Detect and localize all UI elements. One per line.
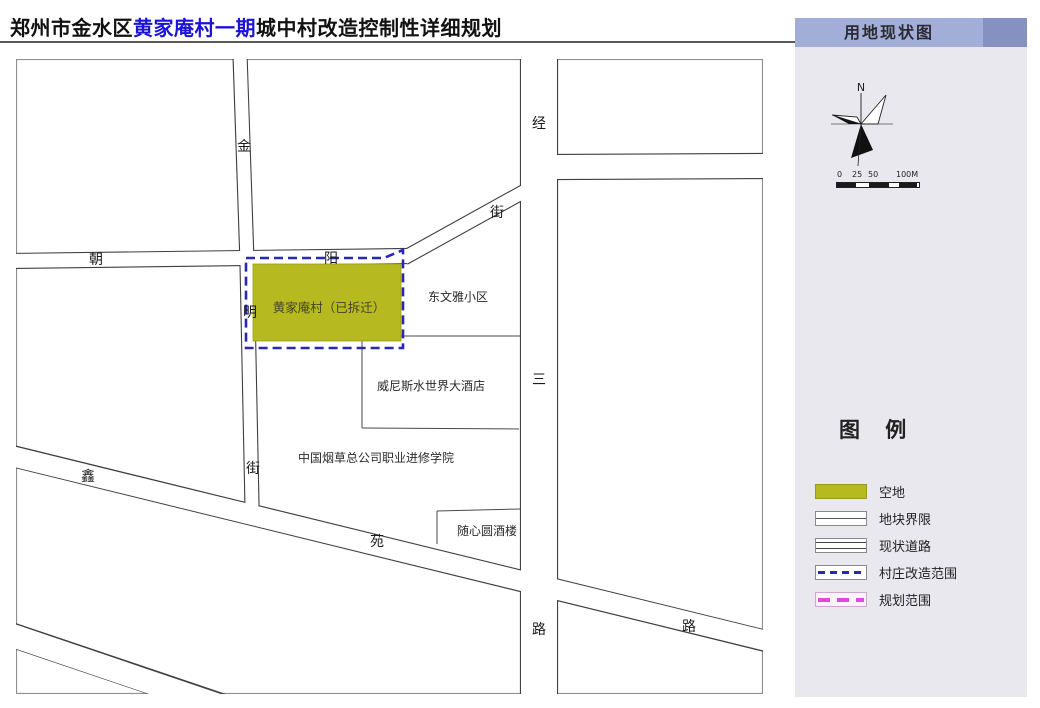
road-label-jin: 金 (237, 139, 251, 155)
scale-tick-0: 0 (837, 170, 842, 179)
existing-road-swatch (815, 538, 867, 553)
scale-tick-100m: 100M (896, 170, 918, 179)
legend-label: 现状道路 (879, 536, 931, 555)
legend-label: 规划范围 (879, 590, 931, 609)
plot-boundary-swatch (815, 511, 867, 526)
scale-tick-25: 25 (852, 170, 862, 179)
road-label-xin: 鑫 (81, 468, 95, 485)
compass-icon: N (828, 76, 898, 171)
road-label-jie-vertical: 街 (246, 461, 260, 477)
legend-item-existing-road: 现状道路 (815, 538, 957, 552)
road-label-san: 三 (532, 372, 546, 388)
legend-item-vacant-land: 空地 (815, 484, 957, 498)
legend: 空地 地块界限 现状道路 村庄改造范围 规划范围 (815, 484, 957, 619)
plot-boundaries (362, 336, 521, 544)
road-southwest-fill (16, 635, 235, 694)
legend-label: 村庄改造范围 (879, 563, 957, 582)
village-parcel-label: 黄家庵村（已拆迁） (273, 300, 386, 315)
title-suffix: 城中村改造控制性详细规划 (256, 16, 502, 40)
map-canvas: 金 明 街 朝 阳 街 经 三 路 鑫 苑 路 黄家庵村（已拆迁） 东文雅小区 … (16, 59, 763, 694)
side-panel: 用地现状图 N 0 25 50 100M (795, 18, 1027, 697)
title-prefix: 郑州市金水区 (10, 16, 133, 40)
road-label-ming: 明 (243, 305, 257, 321)
panel-header-accent (983, 18, 1027, 47)
legend-item-village-redevelopment-scope: 村庄改造范围 (815, 565, 957, 579)
compass-north-label: N (857, 81, 865, 94)
scale-ticks: 0 25 50 100M (836, 170, 928, 180)
scale-tick-50: 50 (868, 170, 878, 179)
road-label-jing: 经 (532, 116, 546, 132)
road-label-yuan: 苑 (370, 534, 384, 550)
page: 郑州市金水区黄家庵村一期城中村改造控制性详细规划 (0, 0, 1040, 708)
area-label-venice-hotel: 威尼斯水世界大酒店 (377, 379, 485, 393)
scale-seg-2 (856, 183, 869, 187)
title-rule (0, 41, 797, 43)
title-highlight: 黄家庵村一期 (133, 16, 256, 40)
legend-item-plot-boundary: 地块界限 (815, 511, 957, 525)
scale-seg-5 (899, 183, 917, 187)
legend-label: 空地 (879, 482, 905, 501)
legend-title: 图 例 (839, 414, 915, 444)
compass-blade-ne-light (861, 95, 886, 124)
road-label-chao: 朝 (89, 252, 103, 268)
road-xinyuan-fill (16, 456, 763, 641)
village-scope-swatch (815, 565, 867, 580)
scale-seg-1 (837, 183, 856, 187)
map-svg: 金 明 街 朝 阳 街 经 三 路 鑫 苑 路 黄家庵村（已拆迁） 东文雅小区 … (16, 59, 763, 694)
suixinyuan-plot-top-line (437, 509, 521, 511)
scale-seg-3 (869, 183, 889, 187)
scale-seg-4 (889, 183, 899, 187)
venice-plot-bottom-line (362, 428, 519, 429)
area-label-dongwenya: 东文雅小区 (428, 289, 488, 304)
road-connector-fill (404, 191, 525, 258)
legend-label: 地块界限 (879, 509, 931, 528)
road-label-lu-diagonal: 路 (682, 619, 696, 635)
panel-title: 用地现状图 (795, 18, 983, 47)
scale-bar-segments (836, 182, 920, 188)
planning-scope-swatch (815, 592, 867, 607)
road-label-yang: 阳 (324, 251, 338, 267)
road-casings (16, 59, 763, 694)
legend-item-planning-scope: 规划范围 (815, 592, 957, 606)
panel-header: 用地现状图 (795, 18, 1027, 47)
road-label-jie-diagonal: 街 (490, 205, 504, 221)
vacant-land-swatch (815, 484, 867, 499)
compass-blade-s-dark (851, 124, 873, 158)
road-label-lu-vertical: 路 (532, 622, 546, 638)
scale-bar: 0 25 50 100M (836, 170, 928, 192)
area-label-suixinyuan: 随心圆酒楼 (457, 523, 517, 538)
page-title: 郑州市金水区黄家庵村一期城中村改造控制性详细规划 (10, 12, 502, 41)
area-label-tobacco-college: 中国烟草总公司职业进修学院 (298, 450, 454, 465)
road-east-horizontal-fill (555, 166, 763, 167)
